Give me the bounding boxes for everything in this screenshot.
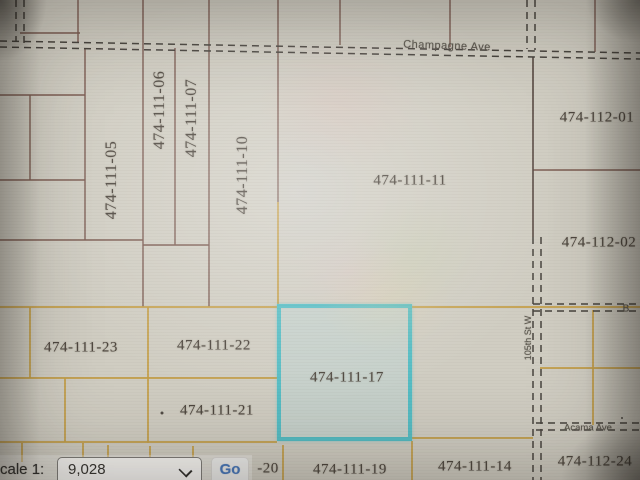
parcel-map-viewer: 474-111-05 474-111-06 474-111-07 474-111… [0,0,640,480]
chevron-down-icon [178,463,192,477]
parcel-label-474-112-24[interactable]: 474-112-24 [558,454,632,471]
parcel-label-474-111-21[interactable]: 474-111-21 [180,403,254,420]
street-label-champagne-ave: Champagne Ave [403,38,491,53]
street-label-acama-ave: Acama Ave [564,423,612,434]
parcel-label-474-111-22[interactable]: 474-111-22 [177,338,251,355]
parcel-label-474-111-20-partial[interactable]: -20 [257,461,279,478]
parcel-label-474-112-01[interactable]: 474-112-01 [560,110,634,127]
parcel-label-474-111-07[interactable]: 474-111-07 [183,79,201,157]
street-label-105th-st-w: 105th St W [523,316,533,361]
parcel-label-474-111-10[interactable]: 474-111-10 [234,136,252,214]
parcel-label-474-111-23[interactable]: 474-111-23 [44,340,118,357]
parcel-label-474-111-06[interactable]: 474-111-06 [151,71,169,149]
scale-value: 9,028 [68,461,106,478]
parcel-label-474-111-05[interactable]: 474-111-05 [103,141,121,219]
parcel-label-474-111-11[interactable]: 474-111-11 [373,173,446,190]
parcel-label-474-112-02[interactable]: 474-112-02 [562,235,636,252]
scale-label: Scale 1: [0,461,44,478]
scale-dropdown[interactable]: 9,028 [57,457,202,480]
parcel-label-474-111-19[interactable]: 474-111-19 [313,462,387,479]
parcel-label-474-111-17[interactable]: 474-111-17 [310,370,384,387]
map-point-marker [621,417,623,419]
go-button[interactable]: Go [211,457,249,480]
parcel-label-474-111-14[interactable]: 474-111-14 [438,459,512,476]
street-label-b-partial: B [623,304,630,315]
map-point-marker [161,412,164,415]
